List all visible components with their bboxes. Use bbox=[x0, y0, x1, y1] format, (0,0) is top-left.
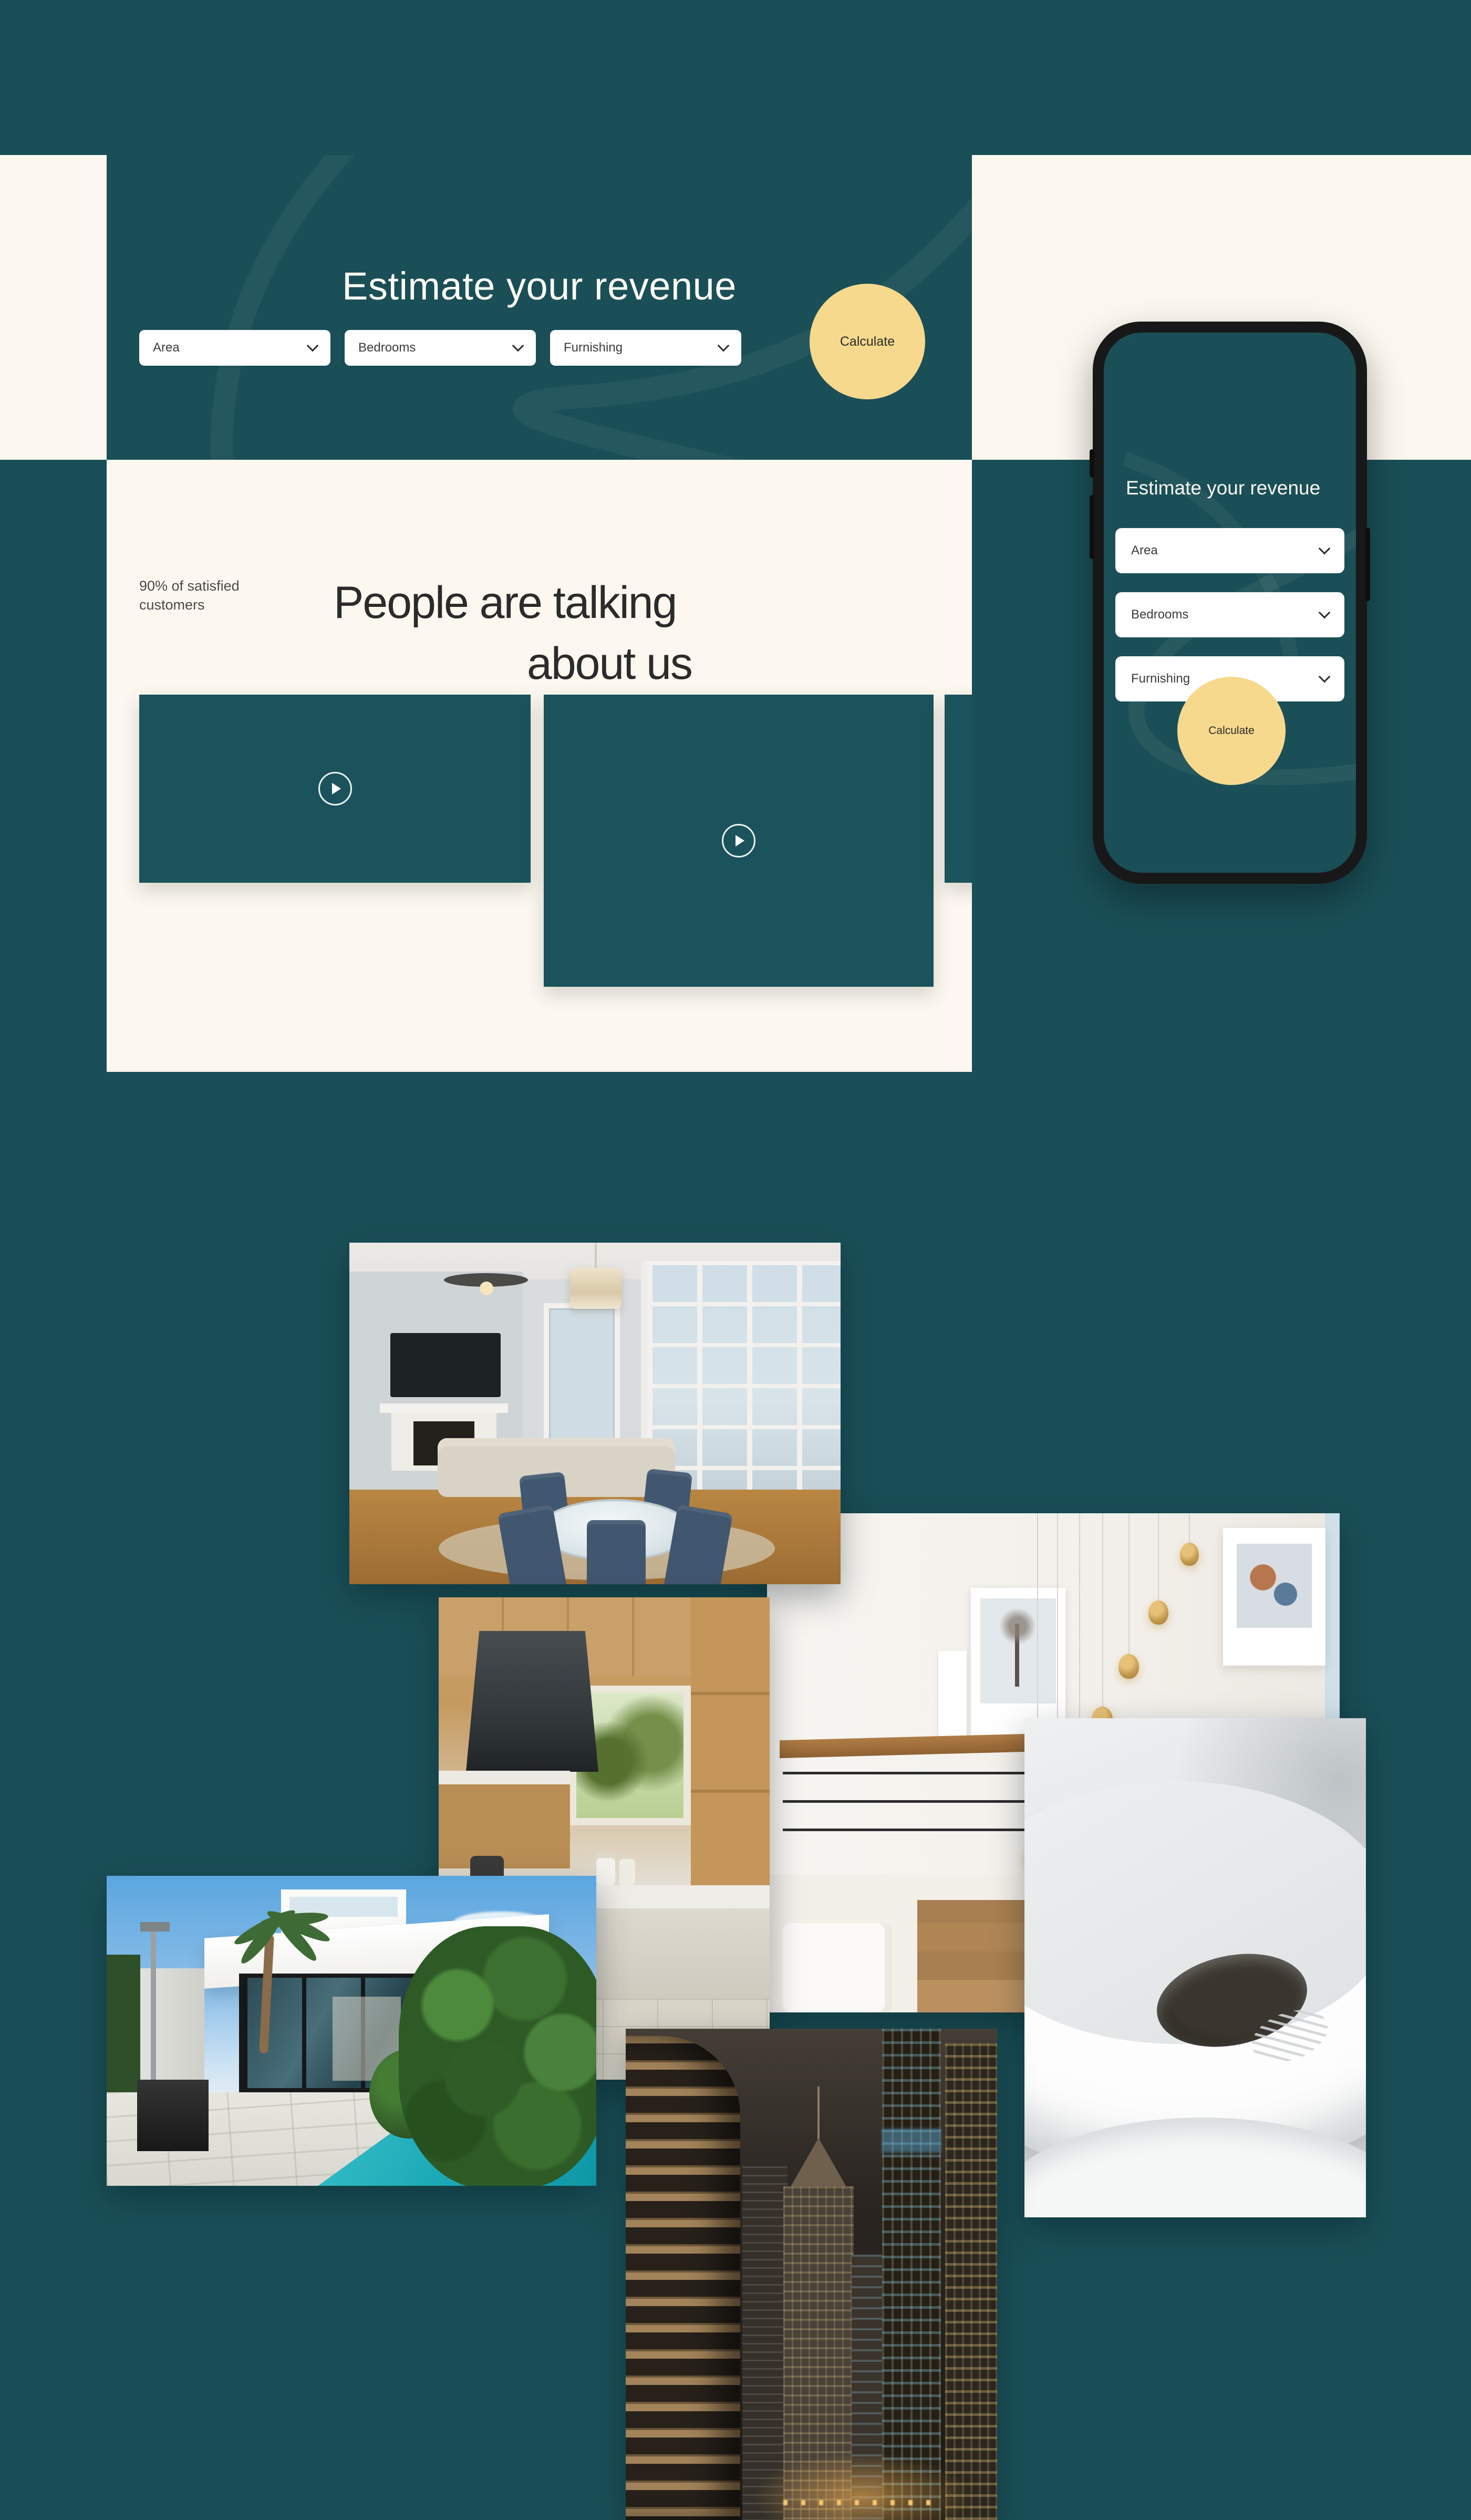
chevron-down-icon bbox=[718, 340, 730, 352]
furnishing-select[interactable]: Furnishing bbox=[550, 330, 741, 366]
testimonials-title-line1: People are talking bbox=[334, 577, 676, 629]
phone-calculate-button[interactable]: Calculate bbox=[1177, 677, 1286, 785]
play-icon[interactable] bbox=[318, 772, 352, 805]
play-triangle bbox=[332, 783, 341, 794]
play-triangle bbox=[735, 835, 744, 846]
phone-furnishing-select-label: Furnishing bbox=[1131, 672, 1190, 686]
satisfied-customers-stat: 90% of satisfied customers bbox=[139, 577, 244, 614]
furnishing-select-label: Furnishing bbox=[564, 340, 623, 355]
bedrooms-select[interactable]: Bedrooms bbox=[345, 330, 536, 366]
phone-side-button bbox=[1365, 528, 1370, 601]
phone-side-button bbox=[1090, 495, 1094, 559]
design-canvas: Estimate your revenue Area Bedrooms Furn… bbox=[0, 0, 1471, 2520]
bedrooms-select-label: Bedrooms bbox=[358, 340, 416, 355]
chevron-down-icon bbox=[1319, 607, 1331, 619]
photo-living-dining-room bbox=[349, 1243, 841, 1584]
testimonial-video-2[interactable] bbox=[544, 695, 934, 987]
chevron-down-icon bbox=[1319, 543, 1331, 555]
phone-area-select[interactable]: Area bbox=[1115, 528, 1344, 573]
phone-form: Area Bedrooms Furnishing bbox=[1115, 528, 1344, 701]
phone-bedrooms-select[interactable]: Bedrooms bbox=[1115, 592, 1344, 637]
phone-screen: Estimate your revenue Area Bedrooms Furn… bbox=[1104, 333, 1356, 873]
testimonials-title-line2: about us bbox=[527, 638, 692, 690]
phone-mockup: Estimate your revenue Area Bedrooms Furn… bbox=[1093, 322, 1367, 884]
chevron-down-icon bbox=[307, 340, 319, 352]
phone-area-select-label: Area bbox=[1131, 543, 1158, 558]
phone-bedrooms-select-label: Bedrooms bbox=[1131, 607, 1188, 622]
photo-night-skyscrapers bbox=[626, 2029, 997, 2520]
testimonial-video-1[interactable] bbox=[139, 695, 531, 883]
area-select-label: Area bbox=[153, 340, 180, 355]
photo-villa-with-pool bbox=[107, 1876, 596, 2186]
play-icon[interactable] bbox=[722, 824, 755, 858]
testimonial-video-3[interactable] bbox=[945, 695, 972, 883]
chevron-down-icon bbox=[1319, 671, 1331, 683]
calculate-button[interactable]: Calculate bbox=[810, 284, 925, 399]
estimate-revenue-section: Estimate your revenue Area Bedrooms Furn… bbox=[107, 155, 972, 460]
phone-hero-title: Estimate your revenue bbox=[1126, 477, 1320, 499]
phone-side-button bbox=[1090, 449, 1094, 478]
area-select[interactable]: Area bbox=[139, 330, 330, 366]
chevron-down-icon bbox=[512, 340, 524, 352]
testimonials-section: 90% of satisfied customers People are ta… bbox=[107, 460, 972, 1072]
photo-white-spiral-staircase bbox=[1024, 1718, 1366, 2217]
hero-form: Area Bedrooms Furnishing bbox=[139, 330, 741, 366]
